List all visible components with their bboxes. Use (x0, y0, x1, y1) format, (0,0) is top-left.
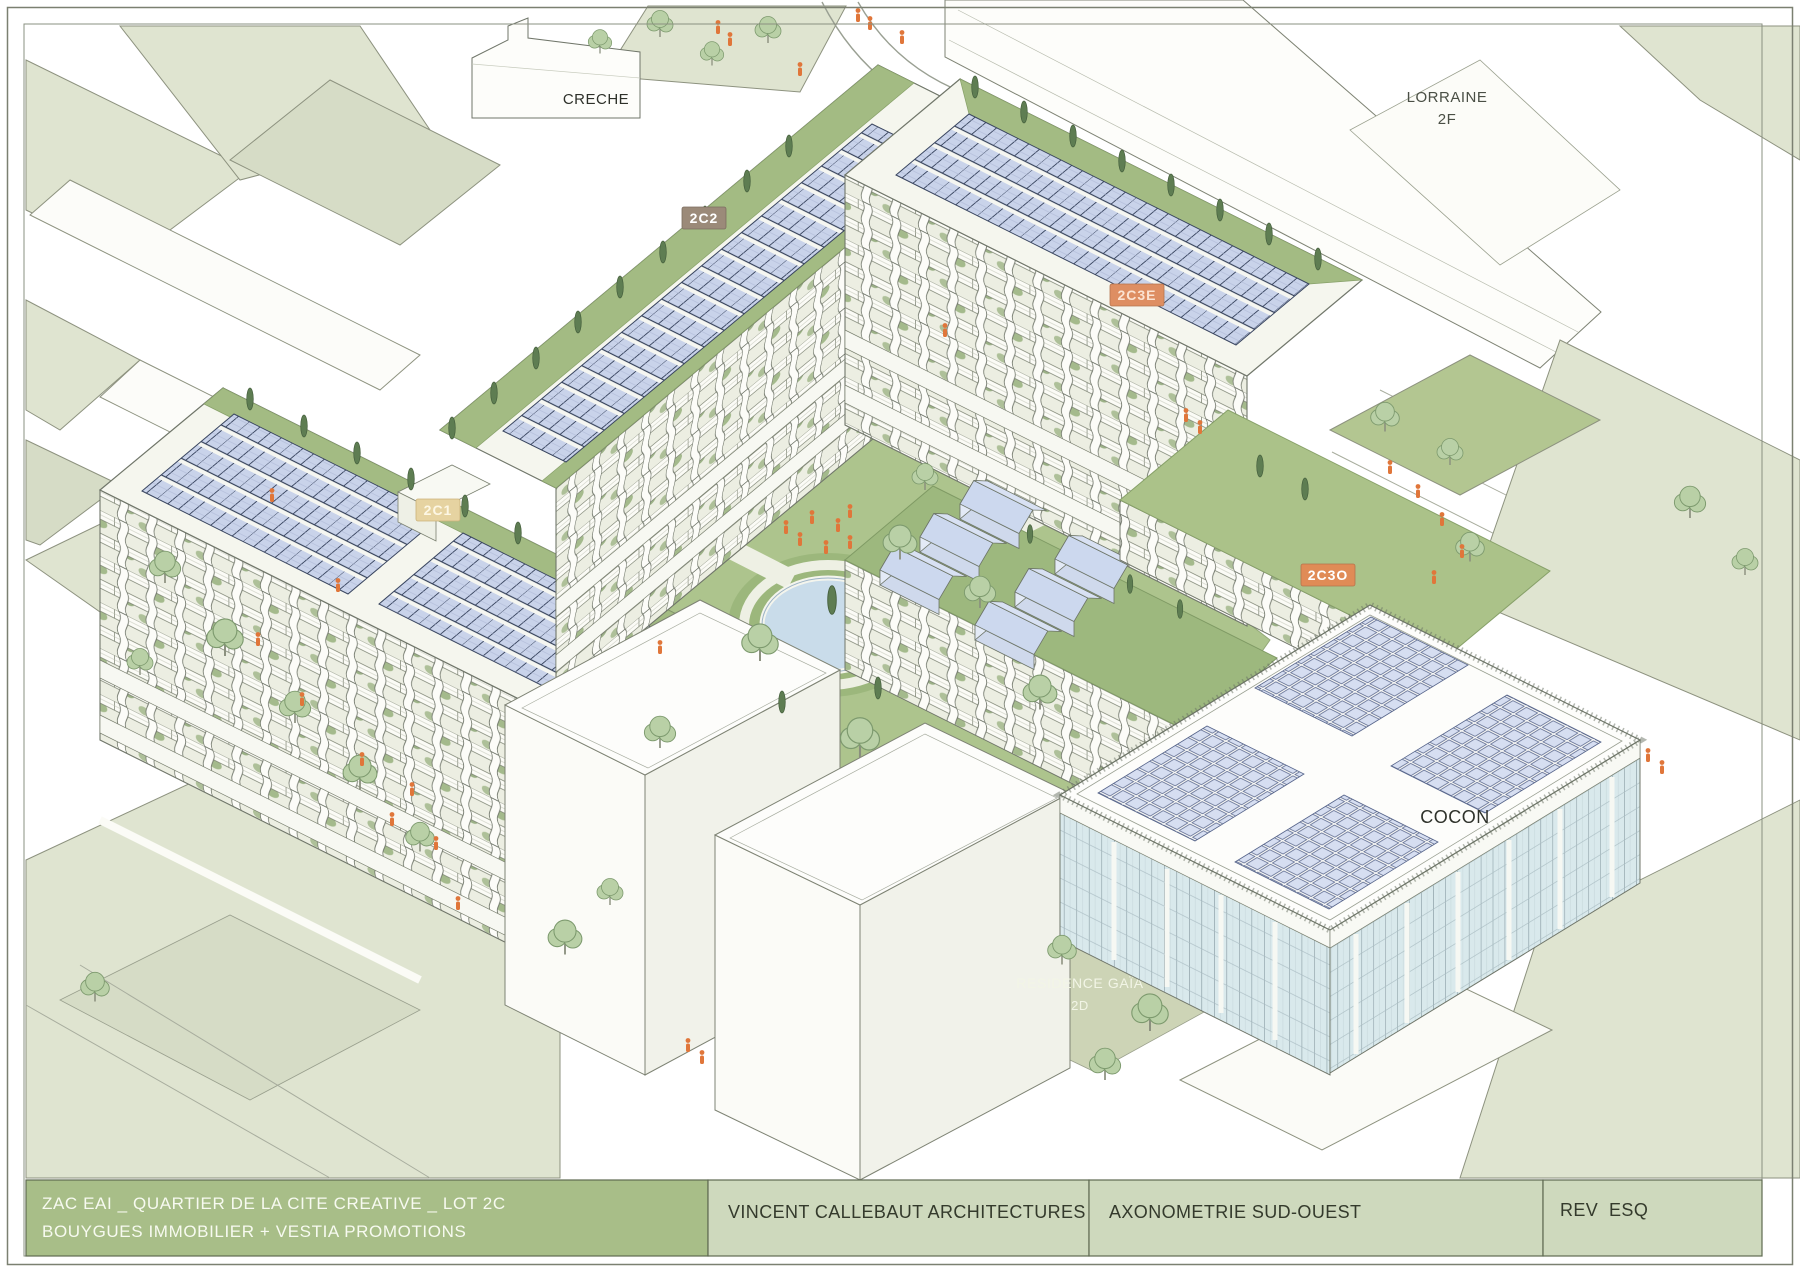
view-title: AXONOMETRIE SUD-OUEST (1109, 1202, 1361, 1222)
architect-name: VINCENT CALLEBAUT ARCHITECTURES (728, 1202, 1086, 1222)
badge-2c3o-label: 2C3O (1308, 567, 1349, 583)
badge-2c1-label: 2C1 (424, 502, 453, 518)
label-lorraine: LORRAINE (1407, 89, 1488, 106)
label-cocon: COCON (1420, 807, 1490, 827)
project-title-line1: ZAC EAI _ QUARTIER DE LA CITE CREATIVE _… (42, 1194, 506, 1213)
label-residence-gaia: RESIDENCE GAÏA (1016, 975, 1143, 991)
revision-label: REV ESQ (1560, 1200, 1648, 1220)
badge-2c2-label: 2C2 (690, 210, 719, 226)
label-creche: CRECHE (563, 91, 629, 108)
label-residence-level: 2D (1071, 998, 1089, 1013)
drawing-canvas: LORRAINE 2F CRECHE 2C1 (0, 0, 1800, 1272)
title-cell-project (26, 1180, 708, 1256)
label-lorraine-level: 2F (1438, 111, 1457, 128)
axonometric-drawing-sheet: LORRAINE 2F CRECHE 2C1 (0, 0, 1800, 1272)
badge-2c3e-label: 2C3E (1117, 287, 1156, 303)
project-title-line2: BOUYGUES IMMOBILIER + VESTIA PROMOTIONS (42, 1222, 466, 1241)
title-block: ZAC EAI _ QUARTIER DE LA CITE CREATIVE _… (26, 1180, 1762, 1256)
